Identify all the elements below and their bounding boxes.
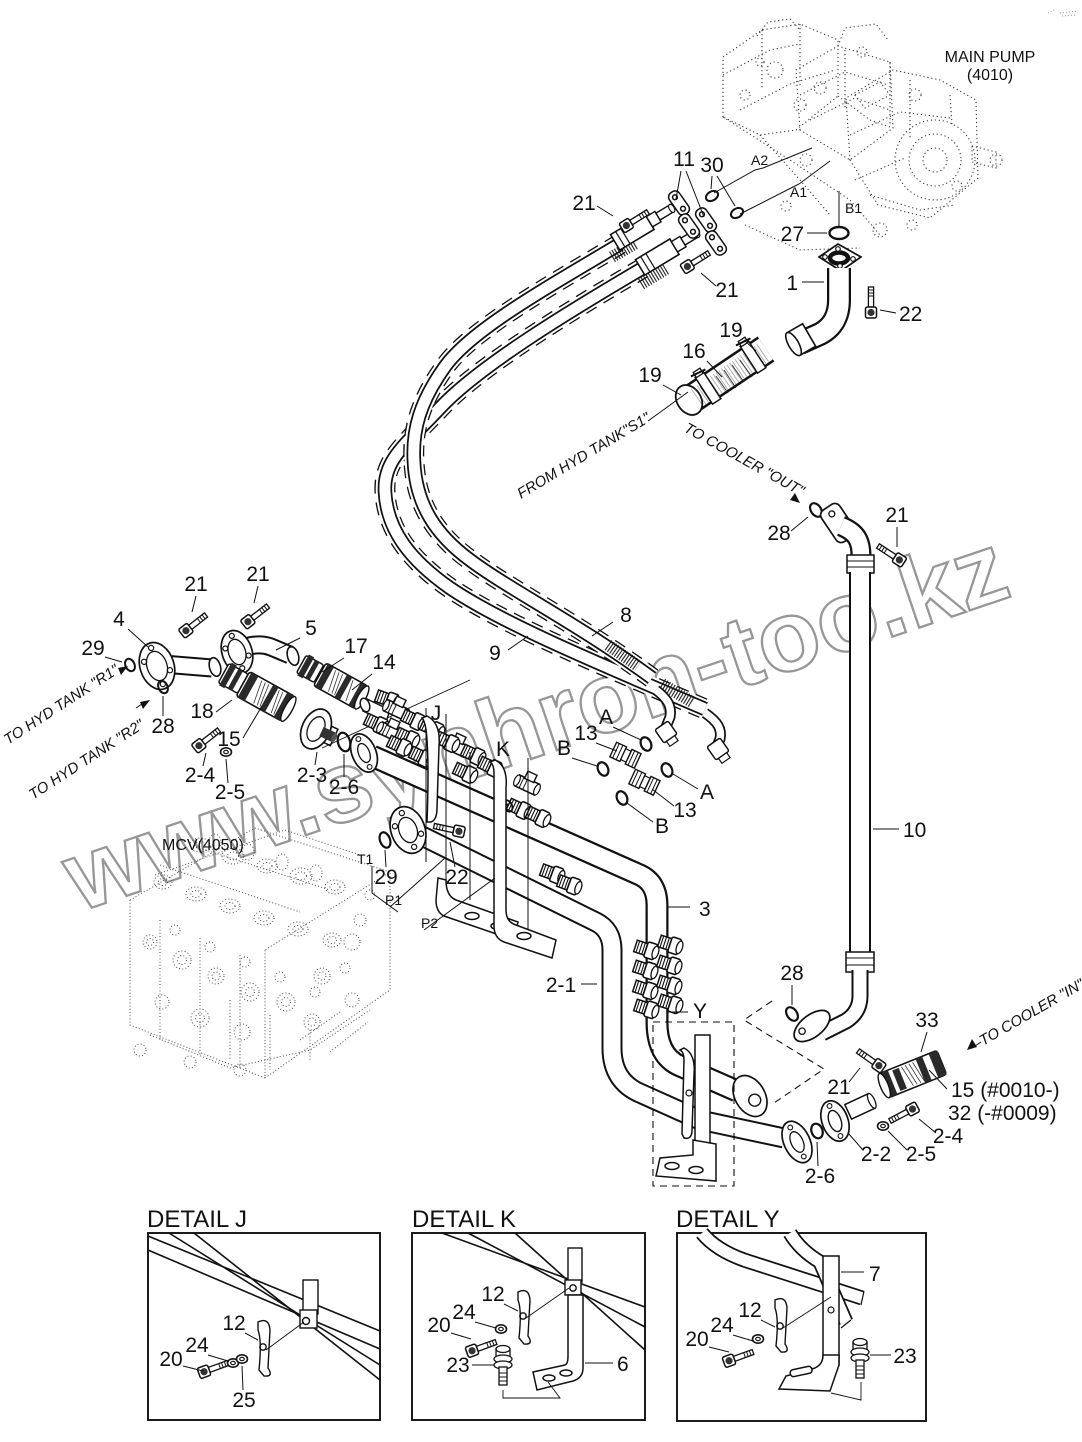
svg-text:A1: A1 [790, 184, 807, 200]
svg-text:19: 19 [719, 319, 742, 342]
svg-text:2-5: 2-5 [906, 1143, 936, 1166]
svg-text:9: 9 [489, 642, 501, 665]
svg-text:4: 4 [113, 608, 125, 631]
svg-text:21: 21 [715, 279, 738, 302]
svg-text:22: 22 [899, 303, 922, 326]
svg-text:14: 14 [372, 651, 396, 674]
svg-text:7: 7 [869, 1263, 881, 1286]
svg-text:23: 23 [893, 1345, 916, 1368]
svg-text:5: 5 [305, 617, 317, 640]
svg-text:12: 12 [222, 1312, 245, 1335]
svg-text:DETAIL J: DETAIL J [147, 1206, 247, 1233]
svg-text:13: 13 [574, 722, 597, 745]
svg-text:12: 12 [481, 1283, 504, 1306]
svg-text:28: 28 [151, 715, 174, 738]
svg-text:2-6: 2-6 [329, 776, 359, 799]
svg-text:2-3: 2-3 [297, 764, 327, 787]
svg-text:P2: P2 [421, 915, 438, 931]
svg-text:8: 8 [620, 604, 632, 627]
svg-text:B1: B1 [845, 200, 862, 216]
svg-text:29: 29 [81, 637, 104, 660]
svg-text:11: 11 [673, 148, 695, 171]
svg-text:6: 6 [617, 1353, 629, 1376]
svg-text:1: 1 [786, 272, 798, 295]
svg-text:30: 30 [700, 154, 723, 177]
svg-text:21: 21 [246, 563, 269, 586]
svg-text:25: 25 [232, 1389, 255, 1412]
svg-text:MAIN PUMP: MAIN PUMP [945, 49, 1036, 66]
svg-text:T1: T1 [357, 851, 374, 867]
svg-text:21: 21 [572, 192, 595, 215]
svg-text:21: 21 [885, 504, 908, 527]
svg-text:2-2: 2-2 [861, 1143, 891, 1166]
svg-text:13: 13 [673, 799, 696, 822]
svg-text:32 (-#0009): 32 (-#0009) [948, 1102, 1057, 1125]
svg-text:B: B [557, 737, 571, 760]
svg-text:20: 20 [159, 1348, 182, 1371]
svg-text:18: 18 [190, 700, 213, 723]
svg-text:2-1: 2-1 [546, 974, 576, 997]
svg-text:24: 24 [452, 1301, 476, 1324]
svg-text:2-4: 2-4 [933, 1125, 964, 1148]
svg-text:K: K [496, 738, 510, 761]
svg-text:DETAIL Y: DETAIL Y [676, 1206, 780, 1233]
svg-text:22: 22 [445, 866, 468, 889]
svg-text:(4010): (4010) [967, 67, 1013, 84]
svg-text:2-4: 2-4 [185, 764, 216, 787]
svg-text:20: 20 [427, 1314, 450, 1337]
svg-text:24: 24 [710, 1314, 734, 1337]
svg-text:DETAIL K: DETAIL K [412, 1206, 516, 1233]
svg-text:23: 23 [446, 1354, 469, 1377]
svg-text:A: A [700, 781, 714, 804]
svg-text:16: 16 [682, 340, 705, 363]
svg-text:20: 20 [685, 1328, 708, 1351]
svg-text:17: 17 [344, 635, 367, 658]
svg-text:19: 19 [638, 364, 661, 387]
svg-text:24: 24 [185, 1334, 209, 1357]
svg-text:21: 21 [184, 573, 207, 596]
svg-text:B: B [655, 815, 669, 838]
svg-text:33: 33 [915, 1009, 938, 1032]
svg-text:2-6: 2-6 [805, 1165, 835, 1188]
svg-text:A2: A2 [751, 152, 768, 168]
svg-text:21: 21 [827, 1076, 850, 1099]
svg-text:3: 3 [699, 898, 711, 921]
svg-text:2-5: 2-5 [215, 781, 245, 804]
svg-text:A: A [599, 706, 613, 729]
svg-text:10: 10 [903, 819, 926, 842]
svg-text:Y: Y [693, 1000, 707, 1023]
svg-text:29: 29 [374, 866, 397, 889]
svg-text:28: 28 [780, 962, 803, 985]
svg-text:28: 28 [767, 522, 790, 545]
svg-text:15 (#0010-): 15 (#0010-) [951, 1079, 1060, 1102]
svg-text:27: 27 [781, 223, 804, 246]
svg-text:12: 12 [738, 1299, 761, 1322]
svg-text:MCV(4050): MCV(4050) [162, 837, 244, 854]
svg-text:P1: P1 [385, 892, 402, 908]
